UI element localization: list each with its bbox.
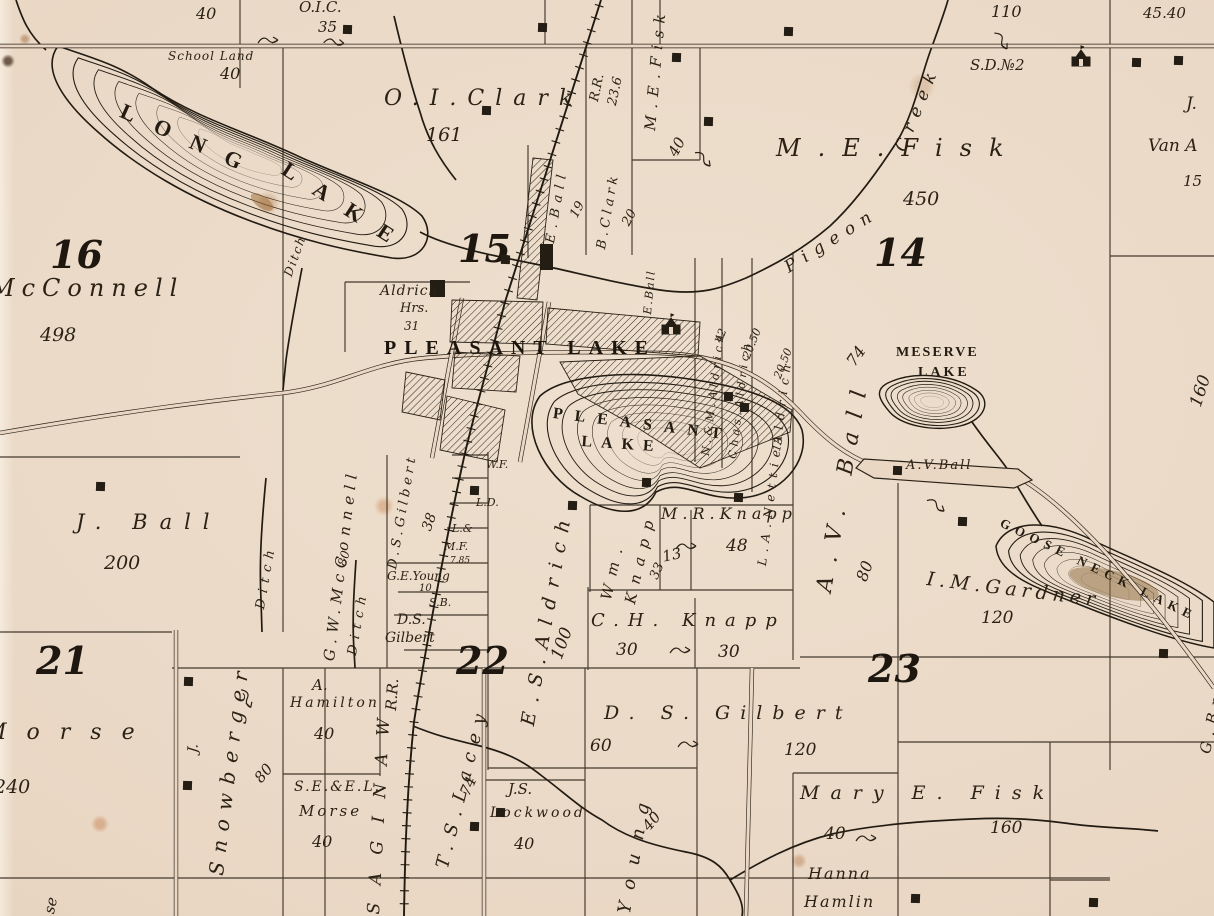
house-symbol — [783, 26, 792, 35]
house-symbol — [182, 780, 191, 789]
railroad-tick — [414, 696, 423, 697]
house-symbol — [469, 485, 478, 494]
lake-contour — [914, 393, 949, 410]
railroad-tick — [405, 774, 414, 775]
house-symbol — [733, 492, 742, 501]
east-ditch — [353, 560, 356, 668]
house-symbol — [342, 24, 351, 33]
survey-mark — [670, 647, 690, 653]
house-symbol — [641, 477, 650, 486]
plat-map-svg — [0, 0, 1214, 916]
railroad-tick — [404, 787, 413, 788]
railroad-tick — [416, 683, 425, 685]
lake-contour — [136, 93, 344, 211]
house-symbol — [95, 481, 104, 490]
railroad-tick — [420, 657, 429, 659]
house-symbol — [1158, 648, 1167, 657]
village-building — [430, 280, 445, 297]
house-symbol — [1088, 897, 1097, 906]
railroad-tick — [407, 748, 416, 749]
railroad-tick — [418, 670, 427, 672]
long-lake-ditch — [283, 268, 302, 390]
av-ball-strip — [856, 459, 1032, 488]
village-blocks — [402, 158, 792, 468]
lake-contour — [909, 390, 956, 413]
clark-stream — [394, 16, 456, 180]
railroad-tick — [412, 709, 421, 710]
schoolhouse-icon — [1072, 46, 1090, 66]
house-symbol — [1131, 57, 1140, 66]
house-symbol — [500, 254, 509, 263]
lake-contour — [115, 82, 365, 223]
lake-contour — [886, 379, 980, 426]
plat-map-canvas: 40O.I.C.35School Land4011045.40R.R.23.6M… — [0, 0, 1214, 916]
house-symbol — [1173, 55, 1182, 64]
railroad-tick — [403, 800, 412, 801]
survey-mark — [927, 496, 946, 513]
lake-contour — [897, 384, 967, 419]
survey-mark — [258, 37, 278, 43]
house-symbol — [892, 465, 901, 474]
house-symbol — [957, 516, 966, 525]
railroad-tick — [422, 644, 431, 646]
south-creek-east-branch — [730, 818, 1158, 880]
northwest-inlet — [16, 0, 46, 50]
railroad-tick — [408, 735, 417, 736]
survey-mark — [678, 741, 698, 747]
south-creek — [413, 726, 743, 916]
lake-contour — [157, 105, 323, 199]
meserve-lake — [879, 375, 984, 428]
village-building — [540, 244, 553, 270]
survey-mark — [856, 835, 876, 841]
railroad-tick — [406, 761, 415, 762]
house-symbol — [567, 500, 576, 509]
west-ditch — [260, 478, 266, 632]
house-symbol — [739, 402, 748, 411]
railroad-tick — [410, 722, 419, 723]
house-symbol — [537, 22, 546, 31]
house-symbol — [910, 893, 919, 902]
survey-mark — [241, 688, 253, 709]
house-symbol — [183, 676, 192, 685]
survey-mark — [695, 149, 712, 168]
lake-contour — [903, 387, 961, 416]
house-symbol — [703, 116, 712, 125]
house-symbol — [723, 391, 732, 400]
parcel-lines — [0, 0, 1214, 916]
survey-mark — [676, 543, 696, 549]
lake-contour — [921, 396, 944, 408]
house-symbol — [495, 807, 504, 816]
house-symbol — [671, 52, 680, 61]
house-symbol — [469, 821, 478, 830]
house-symbol — [481, 105, 490, 114]
